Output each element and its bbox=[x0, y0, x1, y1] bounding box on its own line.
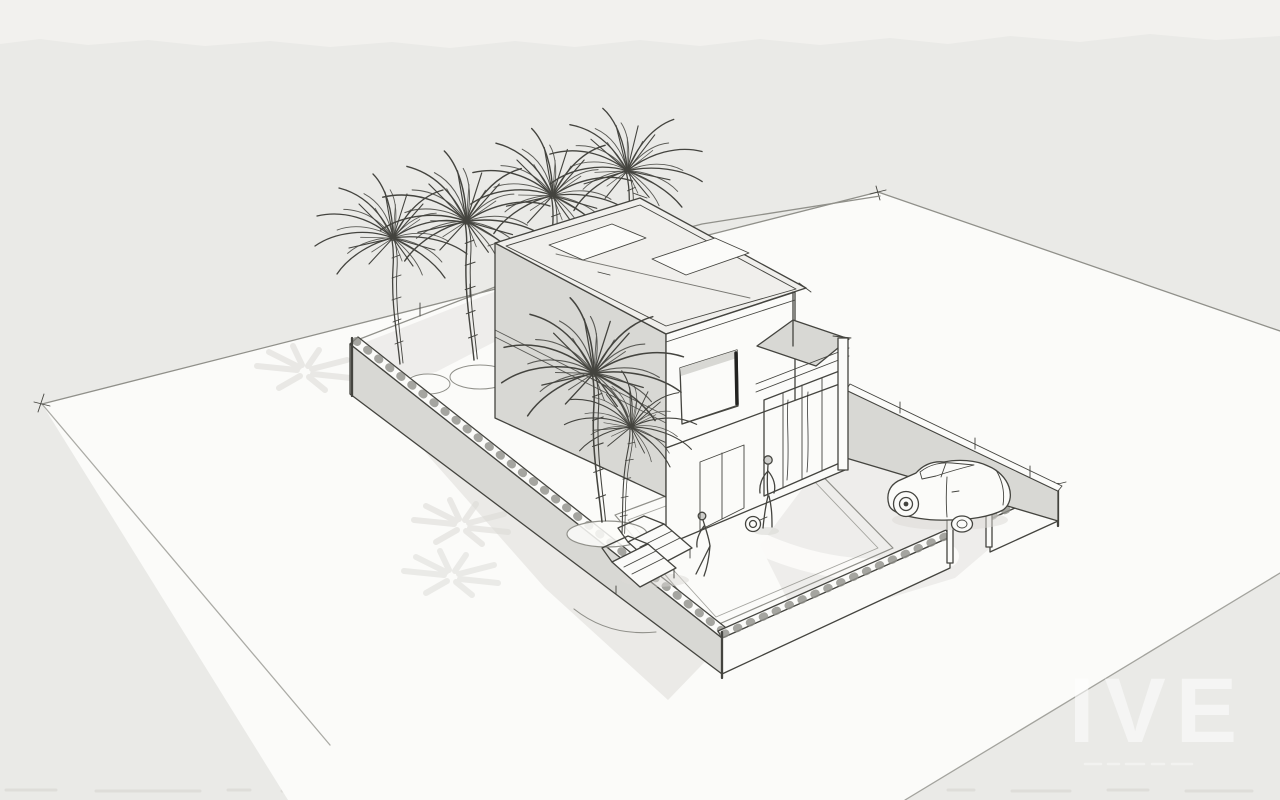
sketch-canvas: IVE bbox=[0, 0, 1280, 800]
watermark: IVE bbox=[1069, 660, 1247, 764]
watermark-text: IVE bbox=[1069, 660, 1247, 762]
car-rear-wheel bbox=[952, 516, 973, 532]
car-front-wheel bbox=[894, 492, 919, 517]
sketch-page: IVE bbox=[0, 0, 1280, 800]
corner-column bbox=[838, 338, 848, 470]
